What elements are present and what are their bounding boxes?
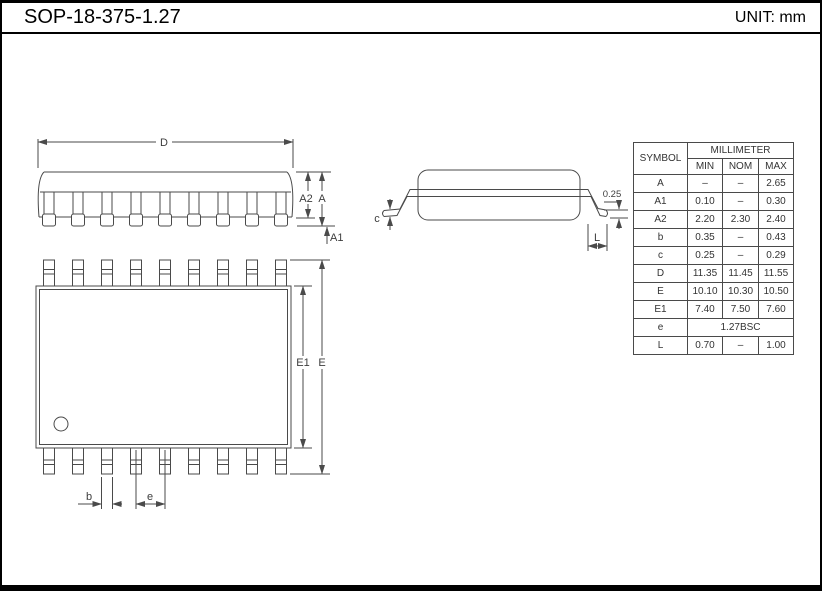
dim-label-b: b [86,491,92,503]
table-row: A – – 2.65 [634,175,794,193]
max-cell: 0.43 [759,229,794,247]
title-bar: SOP-18-375-1.27 UNIT: mm [2,3,820,34]
min-cell: 0.25 [688,247,723,265]
min-cell: 11.35 [688,265,723,283]
nom-cell: 2.30 [723,211,759,229]
table-row: D 11.35 11.45 11.55 [634,265,794,283]
nom-cell: – [723,229,759,247]
min-cell: 2.20 [688,211,723,229]
front-view: D A2 A A1 [38,137,343,244]
max-cell: 1.00 [759,337,794,355]
unit-label: UNIT: mm [735,9,806,27]
symbol-cell: E [634,283,688,301]
symbol-cell: L [634,337,688,355]
span-cell: 1.27BSC [688,319,794,337]
table-row: E 10.10 10.30 10.50 [634,283,794,301]
symbol-cell: E1 [634,301,688,319]
max-cell: 0.30 [759,193,794,211]
nom-cell: – [723,193,759,211]
min-cell: – [688,175,723,193]
max-cell: 7.60 [759,301,794,319]
symbol-cell: D [634,265,688,283]
dim-label-c: c [374,213,380,225]
symbol-cell: c [634,247,688,265]
symbol-cell: A [634,175,688,193]
max-cell: 11.55 [759,265,794,283]
dim-label-D: D [160,137,168,149]
symbol-cell: A1 [634,193,688,211]
min-cell: 10.10 [688,283,723,301]
table-row: A2 2.20 2.30 2.40 [634,211,794,229]
nom-cell: 11.45 [723,265,759,283]
nom-cell: – [723,337,759,355]
max-cell: 0.29 [759,247,794,265]
dimension-table: SYMBOL MILLIMETER MIN NOM MAX A – – 2.65… [633,142,794,355]
table-row: e 1.27BSC [634,319,794,337]
min-cell: 0.70 [688,337,723,355]
min-cell: 7.40 [688,301,723,319]
dim-label-gauge: 0.25 [603,189,622,200]
nom-cell: 10.30 [723,283,759,301]
symbol-cell: e [634,319,688,337]
table-row: A1 0.10 – 0.30 [634,193,794,211]
dim-label-e: e [147,491,153,503]
max-cell: 10.50 [759,283,794,301]
table-row: L 0.70 – 1.00 [634,337,794,355]
nom-header-cell: NOM [723,159,759,175]
millimeter-header-cell: MILLIMETER [688,143,794,159]
nom-cell: 7.50 [723,301,759,319]
max-header-cell: MAX [759,159,794,175]
nom-cell: – [723,247,759,265]
table-row: c 0.25 – 0.29 [634,247,794,265]
top-view-top-pins [44,260,287,286]
dim-label-A1: A1 [330,232,343,244]
symbol-header-cell: SYMBOL [634,143,688,175]
table-row: b 0.35 – 0.43 [634,229,794,247]
dim-label-E: E [318,357,325,369]
symbol-cell: b [634,229,688,247]
top-view: E1 E b e [36,260,330,509]
min-cell: 0.10 [688,193,723,211]
symbol-cell: A2 [634,211,688,229]
min-header-cell: MIN [688,159,723,175]
min-cell: 0.35 [688,229,723,247]
dim-label-E1: E1 [296,357,309,369]
max-cell: 2.40 [759,211,794,229]
dim-label-A2: A2 [299,193,312,205]
nom-cell: – [723,175,759,193]
dim-label-A: A [318,193,326,205]
max-cell: 2.65 [759,175,794,193]
table-header-row: SYMBOL MILLIMETER [634,143,794,159]
datasheet-page: SOP-18-375-1.27 UNIT: mm [0,0,822,591]
table-row: E1 7.40 7.50 7.60 [634,301,794,319]
side-view: c 0.25 L [374,170,628,251]
dim-label-L: L [594,232,600,244]
front-view-leads [43,192,288,226]
page-title: SOP-18-375-1.27 [24,6,181,29]
